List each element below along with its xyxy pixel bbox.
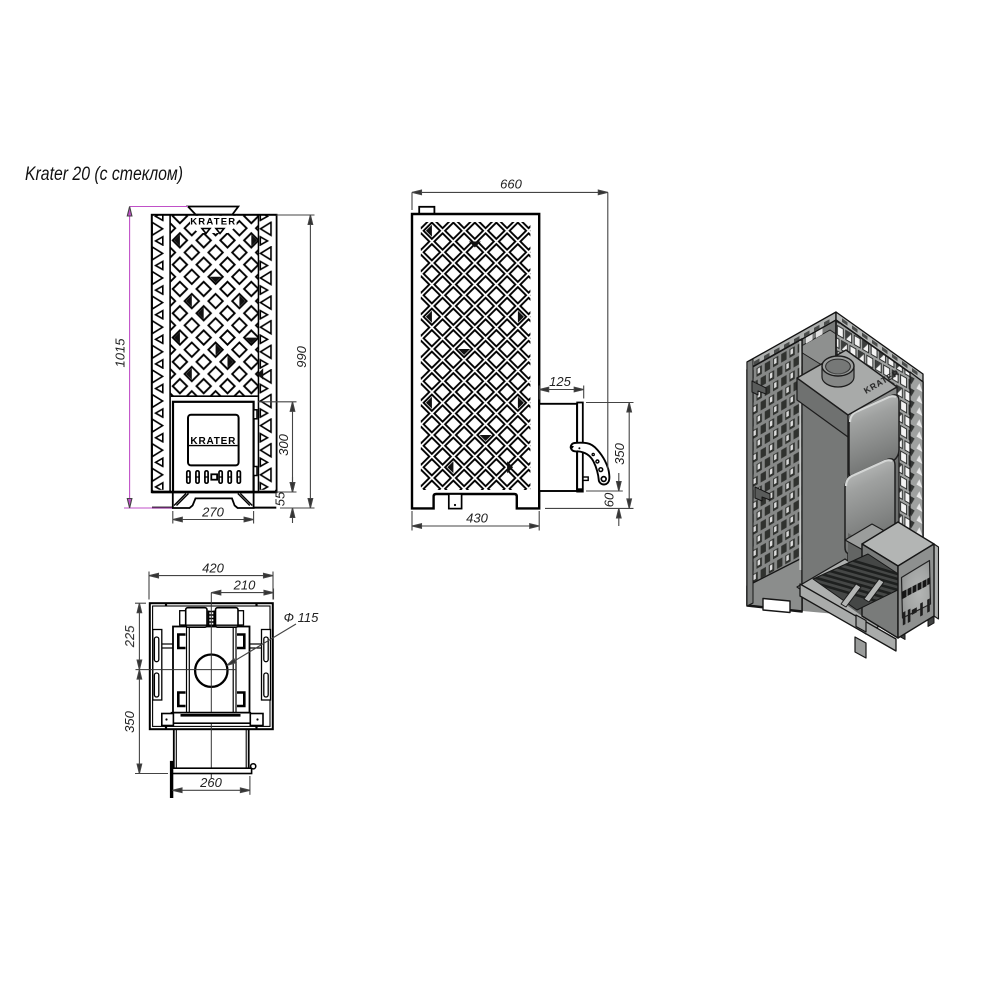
svg-text:225: 225 <box>122 625 137 648</box>
svg-text:210: 210 <box>233 578 256 593</box>
svg-text:60: 60 <box>602 492 617 507</box>
svg-text:420: 420 <box>202 561 224 576</box>
svg-text:260: 260 <box>199 775 222 790</box>
svg-text:990: 990 <box>294 345 309 367</box>
svg-text:660: 660 <box>500 177 522 192</box>
svg-text:270: 270 <box>201 505 224 520</box>
svg-text:KRATER: KRATER <box>190 216 236 227</box>
svg-text:1015: 1015 <box>113 338 128 368</box>
svg-text:Krater 20 (с стеклом): Krater 20 (с стеклом) <box>25 164 183 185</box>
svg-text:350: 350 <box>122 710 137 732</box>
svg-text:125: 125 <box>549 374 571 389</box>
svg-text:430: 430 <box>466 511 488 526</box>
svg-text:350: 350 <box>612 442 627 464</box>
svg-text:Ф 115: Ф 115 <box>284 610 319 625</box>
svg-text:55: 55 <box>273 491 288 506</box>
svg-text:300: 300 <box>276 433 291 455</box>
